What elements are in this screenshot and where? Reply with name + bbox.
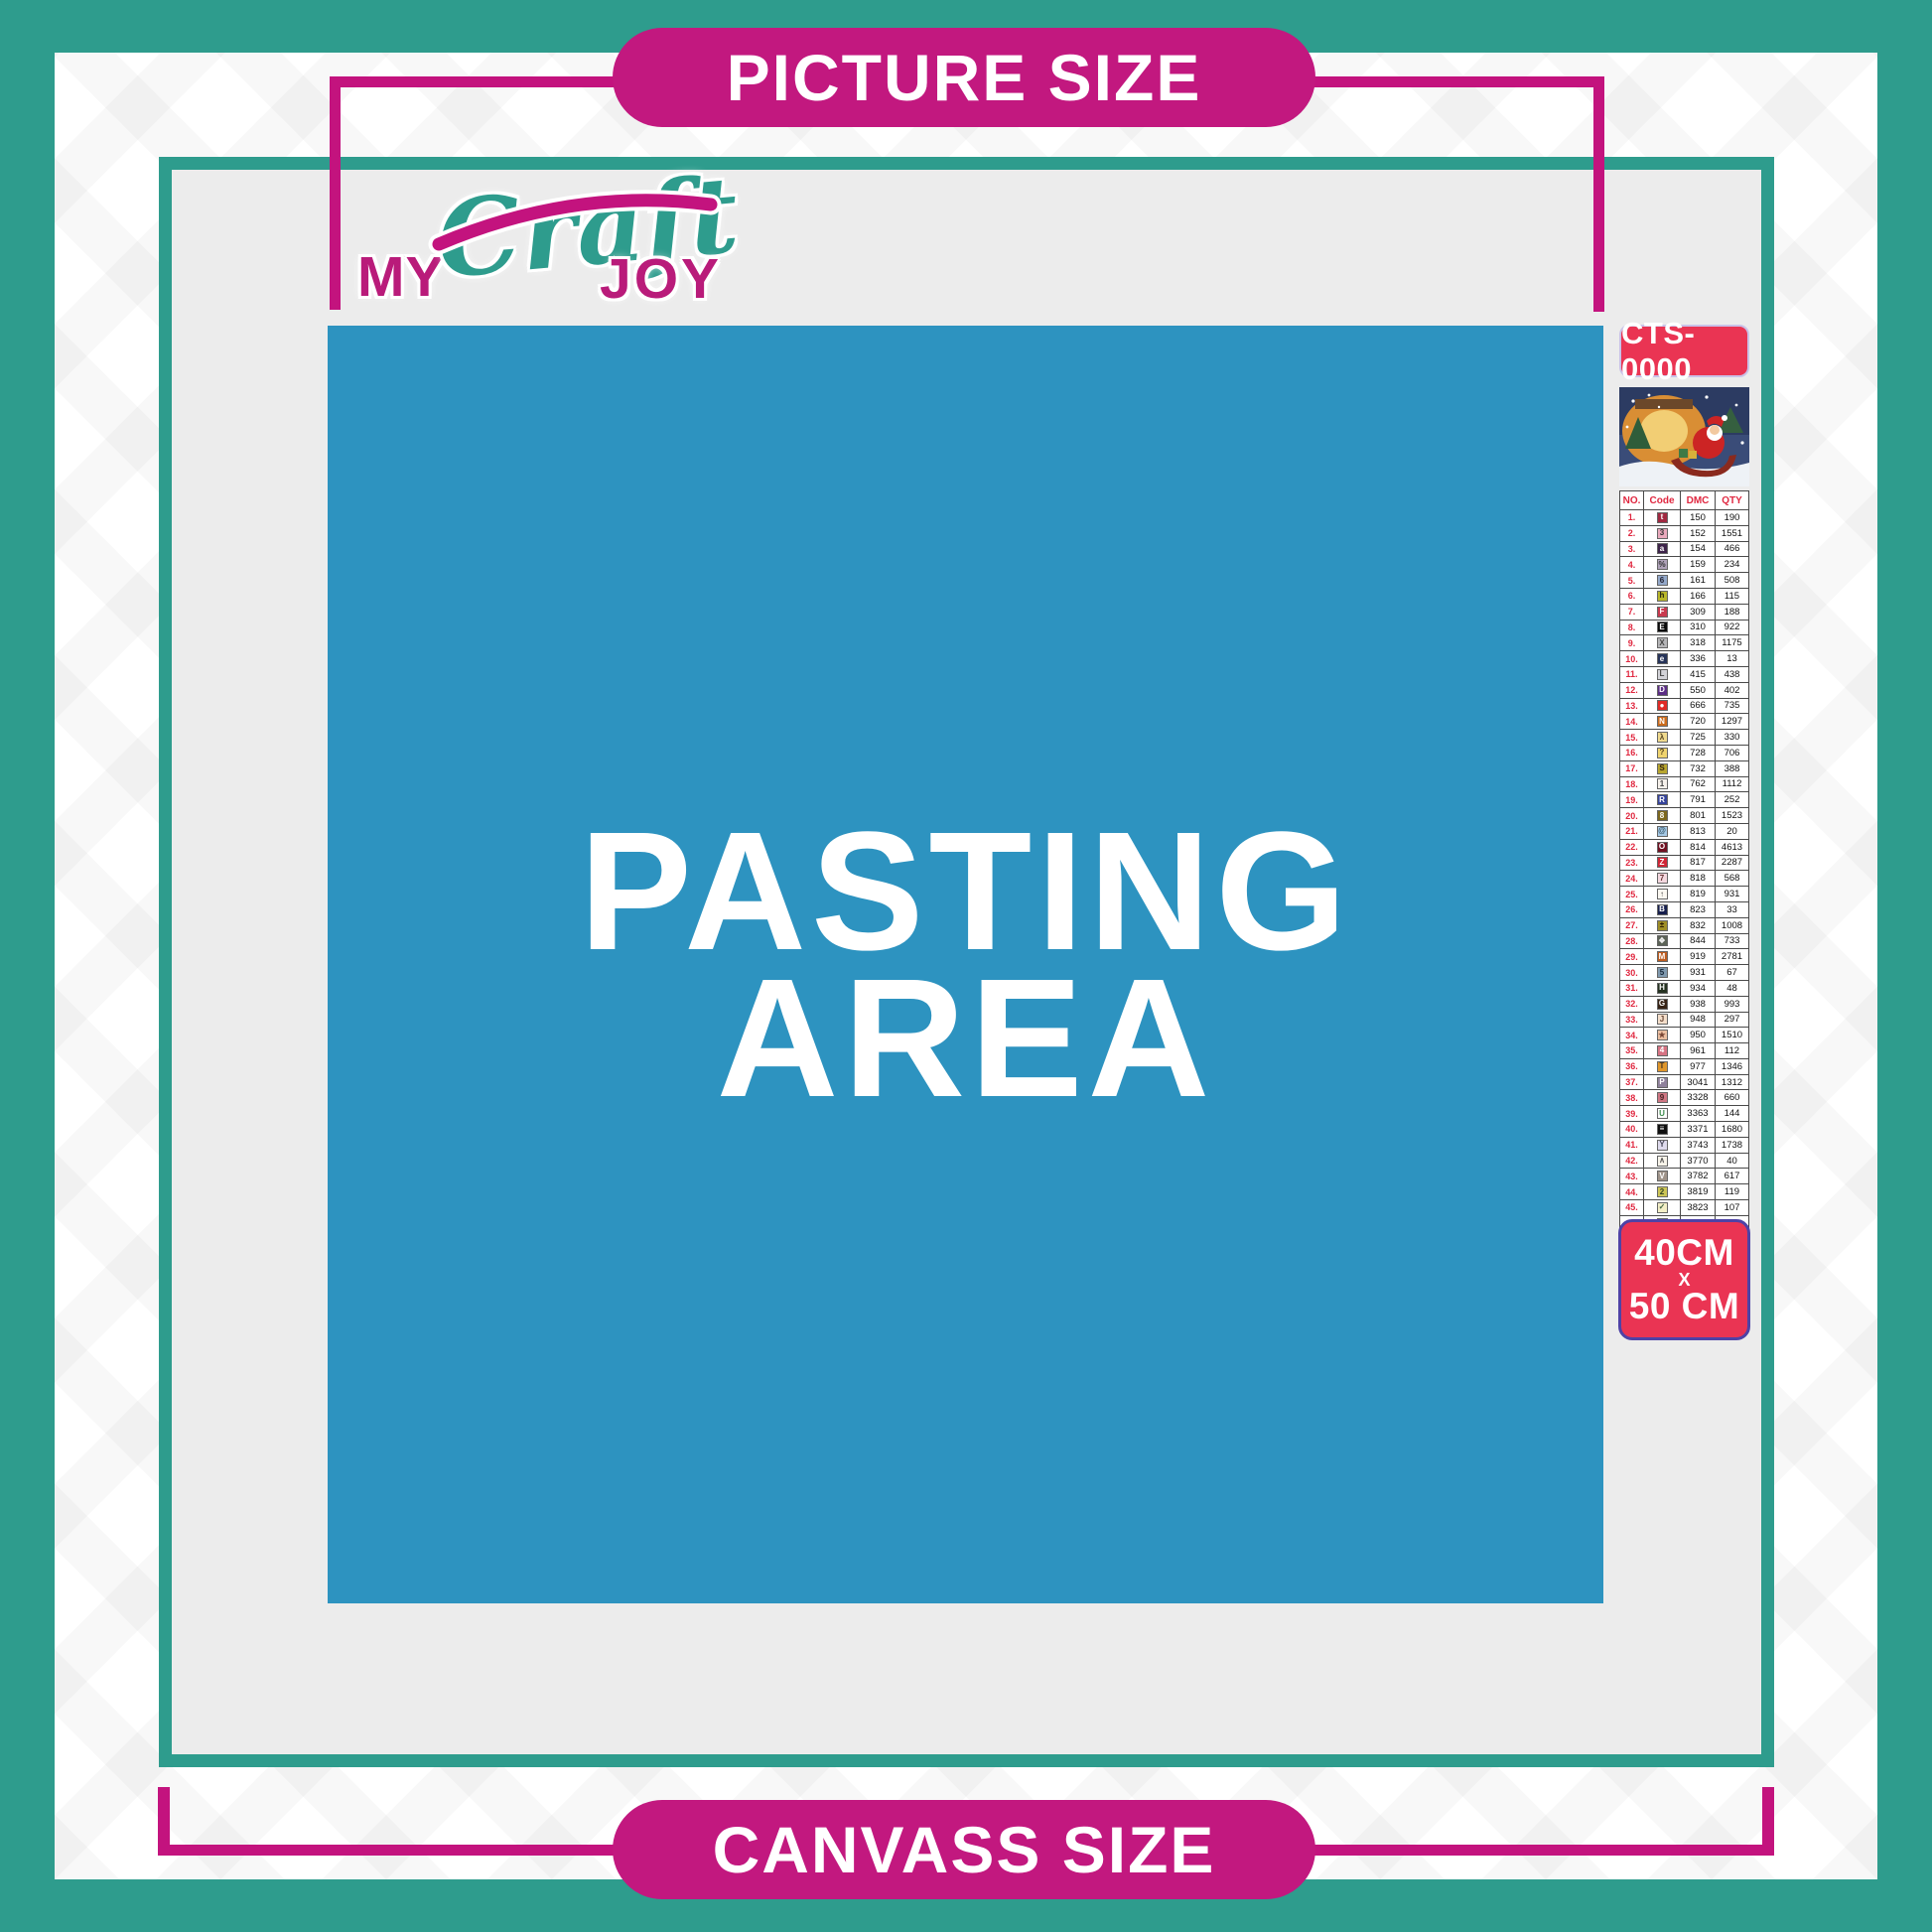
color-legend-table: NO. Code DMC QTY 1.t1501902.315215513.a1… [1619, 490, 1749, 1263]
symbol-chip: ± [1657, 920, 1668, 931]
legend-code-cell: B [1644, 902, 1681, 917]
symbol-chip: 2 [1657, 1186, 1668, 1197]
legend-row: 35.4961112 [1620, 1043, 1748, 1059]
legend-header-code: Code [1644, 491, 1681, 509]
legend-dmc-value: 720 [1681, 714, 1716, 729]
legend-code-cell: O [1644, 840, 1681, 855]
canvass-size-bracket-right [1762, 1787, 1774, 1856]
legend-dmc-value: 159 [1681, 557, 1716, 572]
symbol-chip: 4 [1657, 1045, 1668, 1056]
symbol-chip: M [1657, 951, 1668, 962]
legend-dmc-value: 931 [1681, 965, 1716, 980]
legend-qty-value: 1312 [1716, 1075, 1748, 1090]
symbol-chip: D [1657, 685, 1668, 696]
symbol-chip: 6 [1657, 575, 1668, 586]
legend-dmc-value: 818 [1681, 871, 1716, 886]
legend-row: 36.T9771346 [1620, 1059, 1748, 1075]
legend-dmc-value: 819 [1681, 887, 1716, 901]
legend-row-number: 16. [1620, 746, 1644, 760]
legend-row-number: 2. [1620, 526, 1644, 541]
product-thumbnail [1619, 387, 1749, 486]
symbol-chip: P [1657, 1077, 1668, 1088]
legend-row: 15.λ725330 [1620, 730, 1748, 746]
legend-qty-value: 1523 [1716, 808, 1748, 823]
symbol-chip: ✓ [1657, 1202, 1668, 1213]
symbol-chip: 5 [1657, 967, 1668, 978]
legend-row-number: 45. [1620, 1200, 1644, 1215]
legend-row: 4.%159234 [1620, 557, 1748, 573]
product-infographic: PASTING AREA MY Craft JOY PICTURE SIZE C… [0, 0, 1932, 1932]
canvass-size-bracket-left [158, 1787, 170, 1856]
legend-qty-value: 1510 [1716, 1028, 1748, 1042]
legend-dmc-value: 666 [1681, 699, 1716, 714]
legend-qty-value: 388 [1716, 761, 1748, 776]
legend-qty-value: 1680 [1716, 1122, 1748, 1137]
legend-row-number: 9. [1620, 635, 1644, 650]
legend-table-body: 1.t1501902.315215513.a1544664.%1592345.6… [1620, 510, 1748, 1262]
legend-dmc-value: 3041 [1681, 1075, 1716, 1090]
symbol-chip: 3 [1657, 528, 1668, 539]
legend-code-cell: ? [1644, 746, 1681, 760]
legend-code-cell: 3 [1644, 526, 1681, 541]
legend-qty-value: 190 [1716, 510, 1748, 525]
legend-dmc-value: 309 [1681, 605, 1716, 620]
legend-code-cell: V [1644, 1169, 1681, 1183]
legend-row-number: 21. [1620, 824, 1644, 839]
legend-row: 5.6161508 [1620, 573, 1748, 589]
legend-row: 11.L415438 [1620, 667, 1748, 683]
legend-row: 2.31521551 [1620, 526, 1748, 542]
legend-qty-value: 40 [1716, 1154, 1748, 1169]
legend-dmc-value: 732 [1681, 761, 1716, 776]
legend-row-number: 8. [1620, 621, 1644, 635]
legend-row-number: 24. [1620, 871, 1644, 886]
legend-row-number: 11. [1620, 667, 1644, 682]
legend-code-cell: 8 [1644, 808, 1681, 823]
legend-row: 31.H93448 [1620, 981, 1748, 997]
legend-row: 32.G938993 [1620, 997, 1748, 1013]
legend-row-number: 36. [1620, 1059, 1644, 1074]
symbol-chip: F [1657, 607, 1668, 618]
legend-dmc-value: 166 [1681, 589, 1716, 604]
symbol-chip: @ [1657, 826, 1668, 837]
legend-qty-value: 1008 [1716, 918, 1748, 933]
legend-code-cell: Z [1644, 856, 1681, 871]
legend-row: 34.★9501510 [1620, 1028, 1748, 1043]
legend-code-cell: D [1644, 683, 1681, 698]
legend-code-cell: U [1644, 1106, 1681, 1121]
legend-dmc-value: 801 [1681, 808, 1716, 823]
legend-dmc-value: 415 [1681, 667, 1716, 682]
legend-qty-value: 733 [1716, 934, 1748, 949]
legend-row-number: 6. [1620, 589, 1644, 604]
legend-dmc-value: 3770 [1681, 1154, 1716, 1169]
legend-code-cell: ● [1644, 699, 1681, 714]
legend-qty-value: 993 [1716, 997, 1748, 1012]
logo-word-joy: JOY [600, 246, 722, 312]
pasting-area-line2: AREA [717, 965, 1215, 1112]
legend-row: 23.Z8172287 [1620, 856, 1748, 872]
legend-row: 22.O8144613 [1620, 840, 1748, 856]
legend-dmc-value: 934 [1681, 981, 1716, 996]
legend-code-cell: 9 [1644, 1090, 1681, 1105]
legend-qty-value: 107 [1716, 1200, 1748, 1215]
symbol-chip: h [1657, 591, 1668, 602]
legend-row-number: 3. [1620, 542, 1644, 557]
legend-dmc-value: 725 [1681, 730, 1716, 745]
picture-size-bracket-left [330, 76, 341, 310]
legend-code-cell: T [1644, 1059, 1681, 1074]
legend-code-cell: λ [1644, 730, 1681, 745]
legend-code-cell: H [1644, 981, 1681, 996]
legend-qty-value: 2287 [1716, 856, 1748, 871]
symbol-chip: λ [1657, 732, 1668, 743]
legend-dmc-value: 948 [1681, 1013, 1716, 1028]
picture-size-bracket-right [1593, 76, 1604, 312]
legend-qty-value: 2781 [1716, 949, 1748, 964]
legend-row-number: 35. [1620, 1043, 1644, 1058]
legend-qty-value: 1738 [1716, 1138, 1748, 1153]
legend-dmc-value: 3363 [1681, 1106, 1716, 1121]
legend-code-cell: @ [1644, 824, 1681, 839]
canvas-size-badge: 40CM X 50 CM [1618, 1219, 1750, 1340]
symbol-chip: t [1657, 512, 1668, 523]
symbol-chip: % [1657, 559, 1668, 570]
legend-qty-value: 330 [1716, 730, 1748, 745]
symbol-chip: R [1657, 794, 1668, 805]
symbol-chip: Y [1657, 1140, 1668, 1151]
legend-row: 45.✓3823107 [1620, 1200, 1748, 1216]
legend-row: 27.±8321008 [1620, 918, 1748, 934]
legend-row: 12.D550402 [1620, 683, 1748, 699]
legend-code-cell: E [1644, 621, 1681, 635]
symbol-chip: 8 [1657, 810, 1668, 821]
legend-row-number: 42. [1620, 1154, 1644, 1169]
legend-dmc-value: 3823 [1681, 1200, 1716, 1215]
legend-row: 25.↑819931 [1620, 887, 1748, 902]
legend-row-number: 26. [1620, 902, 1644, 917]
legend-row-number: 41. [1620, 1138, 1644, 1153]
brand-logo: MY Craft JOY [349, 179, 727, 320]
legend-row: 33.J948297 [1620, 1013, 1748, 1029]
legend-code-cell: 7 [1644, 871, 1681, 886]
legend-dmc-value: 938 [1681, 997, 1716, 1012]
legend-dmc-value: 844 [1681, 934, 1716, 949]
legend-qty-value: 297 [1716, 1013, 1748, 1028]
legend-qty-value: 660 [1716, 1090, 1748, 1105]
legend-row-number: 7. [1620, 605, 1644, 620]
legend-row: 43.V3782617 [1620, 1169, 1748, 1184]
legend-row: 18.17621112 [1620, 777, 1748, 793]
legend-code-cell: M [1644, 949, 1681, 964]
legend-row: 6.h166115 [1620, 589, 1748, 605]
legend-code-cell: G [1644, 997, 1681, 1012]
symbol-chip: 7 [1657, 873, 1668, 884]
legend-code-cell: P [1644, 1075, 1681, 1090]
symbol-chip: X [1657, 637, 1668, 648]
legend-dmc-value: 817 [1681, 856, 1716, 871]
legend-dmc-value: 318 [1681, 635, 1716, 650]
legend-row: 41.Y37431738 [1620, 1138, 1748, 1154]
legend-code-cell: N [1644, 714, 1681, 729]
legend-row-number: 19. [1620, 792, 1644, 807]
legend-qty-value: 438 [1716, 667, 1748, 682]
legend-qty-value: 234 [1716, 557, 1748, 572]
legend-row-number: 17. [1620, 761, 1644, 776]
legend-qty-value: 931 [1716, 887, 1748, 901]
symbol-chip: H [1657, 983, 1668, 994]
legend-row-number: 20. [1620, 808, 1644, 823]
legend-qty-value: 1297 [1716, 714, 1748, 729]
legend-qty-value: 617 [1716, 1169, 1748, 1183]
legend-row: 38.93328660 [1620, 1090, 1748, 1106]
brush-swoosh-icon [425, 183, 723, 256]
legend-row: 37.P30411312 [1620, 1075, 1748, 1091]
picture-size-label: PICTURE SIZE [613, 28, 1315, 127]
legend-header-dmc: DMC [1681, 491, 1716, 509]
legend-dmc-value: 919 [1681, 949, 1716, 964]
legend-row: 16.?728706 [1620, 746, 1748, 761]
legend-row-number: 34. [1620, 1028, 1644, 1042]
legend-dmc-value: 150 [1681, 510, 1716, 525]
legend-row: 21.@81320 [1620, 824, 1748, 840]
legend-header-no: NO. [1620, 491, 1644, 509]
legend-qty-value: 402 [1716, 683, 1748, 698]
symbol-chip: V [1657, 1171, 1668, 1181]
legend-qty-value: 48 [1716, 981, 1748, 996]
legend-row-number: 22. [1620, 840, 1644, 855]
legend-row-number: 29. [1620, 949, 1644, 964]
legend-row-number: 38. [1620, 1090, 1644, 1105]
legend-qty-value: 466 [1716, 542, 1748, 557]
legend-row: 39.U3363144 [1620, 1106, 1748, 1122]
symbol-chip: e [1657, 653, 1668, 664]
legend-dmc-value: 813 [1681, 824, 1716, 839]
legend-dmc-value: 154 [1681, 542, 1716, 557]
legend-row-number: 5. [1620, 573, 1644, 588]
symbol-chip: Z [1657, 857, 1668, 868]
legend-code-cell: ± [1644, 918, 1681, 933]
legend-qty-value: 1175 [1716, 635, 1748, 650]
legend-qty-value: 1346 [1716, 1059, 1748, 1074]
legend-code-cell: ∧ [1644, 1154, 1681, 1169]
legend-qty-value: 20 [1716, 824, 1748, 839]
legend-dmc-value: 3782 [1681, 1169, 1716, 1183]
legend-row: 26.B82333 [1620, 902, 1748, 918]
legend-row: 7.F309188 [1620, 605, 1748, 621]
legend-row-number: 13. [1620, 699, 1644, 714]
legend-code-cell: ✓ [1644, 1200, 1681, 1215]
pasting-area-line1: PASTING [579, 818, 1351, 965]
legend-code-cell: e [1644, 651, 1681, 666]
legend-qty-value: 922 [1716, 621, 1748, 635]
symbol-chip: N [1657, 716, 1668, 727]
legend-qty-value: 1112 [1716, 777, 1748, 792]
symbol-chip: ❖ [1657, 935, 1668, 946]
legend-row: 30.593167 [1620, 965, 1748, 981]
legend-code-cell: 6 [1644, 573, 1681, 588]
symbol-chip: B [1657, 904, 1668, 915]
legend-dmc-value: 152 [1681, 526, 1716, 541]
legend-qty-value: 735 [1716, 699, 1748, 714]
symbol-chip: ? [1657, 748, 1668, 759]
size-bottom-value: 50 CM [1629, 1289, 1739, 1324]
legend-qty-value: 706 [1716, 746, 1748, 760]
legend-row: 9.X3181175 [1620, 635, 1748, 651]
legend-row-number: 43. [1620, 1169, 1644, 1183]
legend-dmc-value: 762 [1681, 777, 1716, 792]
legend-qty-value: 112 [1716, 1043, 1748, 1058]
symbol-chip: U [1657, 1108, 1668, 1119]
legend-dmc-value: 961 [1681, 1043, 1716, 1058]
symbol-chip: ★ [1657, 1030, 1668, 1040]
symbol-chip: G [1657, 999, 1668, 1010]
legend-code-cell: ★ [1644, 1028, 1681, 1042]
symbol-chip: L [1657, 669, 1668, 680]
legend-qty-value: 252 [1716, 792, 1748, 807]
symbol-chip: E [1657, 621, 1668, 632]
size-top-value: 40CM [1634, 1235, 1734, 1271]
canvass-size-label: CANVASS SIZE [613, 1800, 1315, 1899]
legend-code-cell: ↑ [1644, 887, 1681, 901]
legend-row: 42.∧377040 [1620, 1154, 1748, 1170]
legend-code-cell: 1 [1644, 777, 1681, 792]
legend-row: 20.88011523 [1620, 808, 1748, 824]
legend-dmc-value: 3328 [1681, 1090, 1716, 1105]
legend-row-number: 15. [1620, 730, 1644, 745]
symbol-chip: J [1657, 1014, 1668, 1025]
legend-row-number: 31. [1620, 981, 1644, 996]
legend-qty-value: 115 [1716, 589, 1748, 604]
legend-code-cell: J [1644, 1013, 1681, 1028]
legend-row-number: 12. [1620, 683, 1644, 698]
symbol-chip: O [1657, 842, 1668, 853]
legend-qty-value: 13 [1716, 651, 1748, 666]
symbol-chip: a [1657, 543, 1668, 554]
product-code-badge: CTS-0000 [1619, 325, 1749, 377]
legend-row: 28.❖844733 [1620, 934, 1748, 950]
legend-qty-value: 1551 [1716, 526, 1748, 541]
legend-code-cell: Y [1644, 1138, 1681, 1153]
legend-code-cell: a [1644, 542, 1681, 557]
legend-row: 8.E310922 [1620, 621, 1748, 636]
legend-qty-value: 188 [1716, 605, 1748, 620]
legend-row-number: 44. [1620, 1184, 1644, 1199]
legend-row-number: 1. [1620, 510, 1644, 525]
legend-row: 14.N7201297 [1620, 714, 1748, 730]
legend-dmc-value: 550 [1681, 683, 1716, 698]
legend-qty-value: 119 [1716, 1184, 1748, 1199]
legend-row-number: 27. [1620, 918, 1644, 933]
legend-code-cell: S [1644, 761, 1681, 776]
legend-row: 3.a154466 [1620, 542, 1748, 558]
symbol-chip: 1 [1657, 778, 1668, 789]
legend-qty-value: 508 [1716, 573, 1748, 588]
legend-dmc-value: 310 [1681, 621, 1716, 635]
legend-dmc-value: 3371 [1681, 1122, 1716, 1137]
legend-code-cell: F [1644, 605, 1681, 620]
legend-qty-value: 67 [1716, 965, 1748, 980]
legend-row: 13.●666735 [1620, 699, 1748, 715]
legend-code-cell: t [1644, 510, 1681, 525]
symbol-chip: ↑ [1657, 889, 1668, 899]
symbol-chip: T [1657, 1061, 1668, 1072]
legend-dmc-value: 3743 [1681, 1138, 1716, 1153]
symbol-chip: S [1657, 763, 1668, 774]
legend-dmc-value: 823 [1681, 902, 1716, 917]
legend-code-cell: 2 [1644, 1184, 1681, 1199]
legend-qty-value: 568 [1716, 871, 1748, 886]
legend-row: 40.≡33711680 [1620, 1122, 1748, 1138]
legend-header-row: NO. Code DMC QTY [1620, 491, 1748, 510]
legend-code-cell: 4 [1644, 1043, 1681, 1058]
legend-row-number: 4. [1620, 557, 1644, 572]
symbol-chip: ● [1657, 700, 1668, 711]
legend-row-number: 28. [1620, 934, 1644, 949]
legend-row: 10.e33613 [1620, 651, 1748, 667]
legend-qty-value: 33 [1716, 902, 1748, 917]
legend-code-cell: ❖ [1644, 934, 1681, 949]
legend-row: 17.S732388 [1620, 761, 1748, 777]
symbol-chip: ∧ [1657, 1156, 1668, 1167]
legend-row-number: 37. [1620, 1075, 1644, 1090]
legend-code-cell: X [1644, 635, 1681, 650]
legend-code-cell: h [1644, 589, 1681, 604]
legend-row-number: 10. [1620, 651, 1644, 666]
legend-row-number: 33. [1620, 1013, 1644, 1028]
legend-dmc-value: 950 [1681, 1028, 1716, 1042]
legend-qty-value: 144 [1716, 1106, 1748, 1121]
legend-row: 19.R791252 [1620, 792, 1748, 808]
symbol-chip: ≡ [1657, 1124, 1668, 1135]
legend-row-number: 40. [1620, 1122, 1644, 1137]
legend-dmc-value: 832 [1681, 918, 1716, 933]
legend-dmc-value: 336 [1681, 651, 1716, 666]
legend-row: 24.7818568 [1620, 871, 1748, 887]
legend-row: 29.M9192781 [1620, 949, 1748, 965]
legend-dmc-value: 161 [1681, 573, 1716, 588]
legend-code-cell: ≡ [1644, 1122, 1681, 1137]
legend-row-number: 39. [1620, 1106, 1644, 1121]
legend-row: 44.23819119 [1620, 1184, 1748, 1200]
legend-code-cell: R [1644, 792, 1681, 807]
legend-row-number: 14. [1620, 714, 1644, 729]
legend-code-cell: 5 [1644, 965, 1681, 980]
legend-row-number: 30. [1620, 965, 1644, 980]
legend-code-cell: % [1644, 557, 1681, 572]
legend-row-number: 25. [1620, 887, 1644, 901]
legend-row-number: 32. [1620, 997, 1644, 1012]
legend-row: 1.t150190 [1620, 510, 1748, 526]
pasting-area: PASTING AREA [328, 326, 1603, 1603]
legend-dmc-value: 814 [1681, 840, 1716, 855]
legend-qty-value: 4613 [1716, 840, 1748, 855]
legend-dmc-value: 977 [1681, 1059, 1716, 1074]
legend-code-cell: L [1644, 667, 1681, 682]
legend-header-qty: QTY [1716, 491, 1748, 509]
legend-dmc-value: 791 [1681, 792, 1716, 807]
symbol-chip: 9 [1657, 1092, 1668, 1103]
legend-dmc-value: 3819 [1681, 1184, 1716, 1199]
legend-row-number: 18. [1620, 777, 1644, 792]
legend-row-number: 23. [1620, 856, 1644, 871]
legend-dmc-value: 728 [1681, 746, 1716, 760]
